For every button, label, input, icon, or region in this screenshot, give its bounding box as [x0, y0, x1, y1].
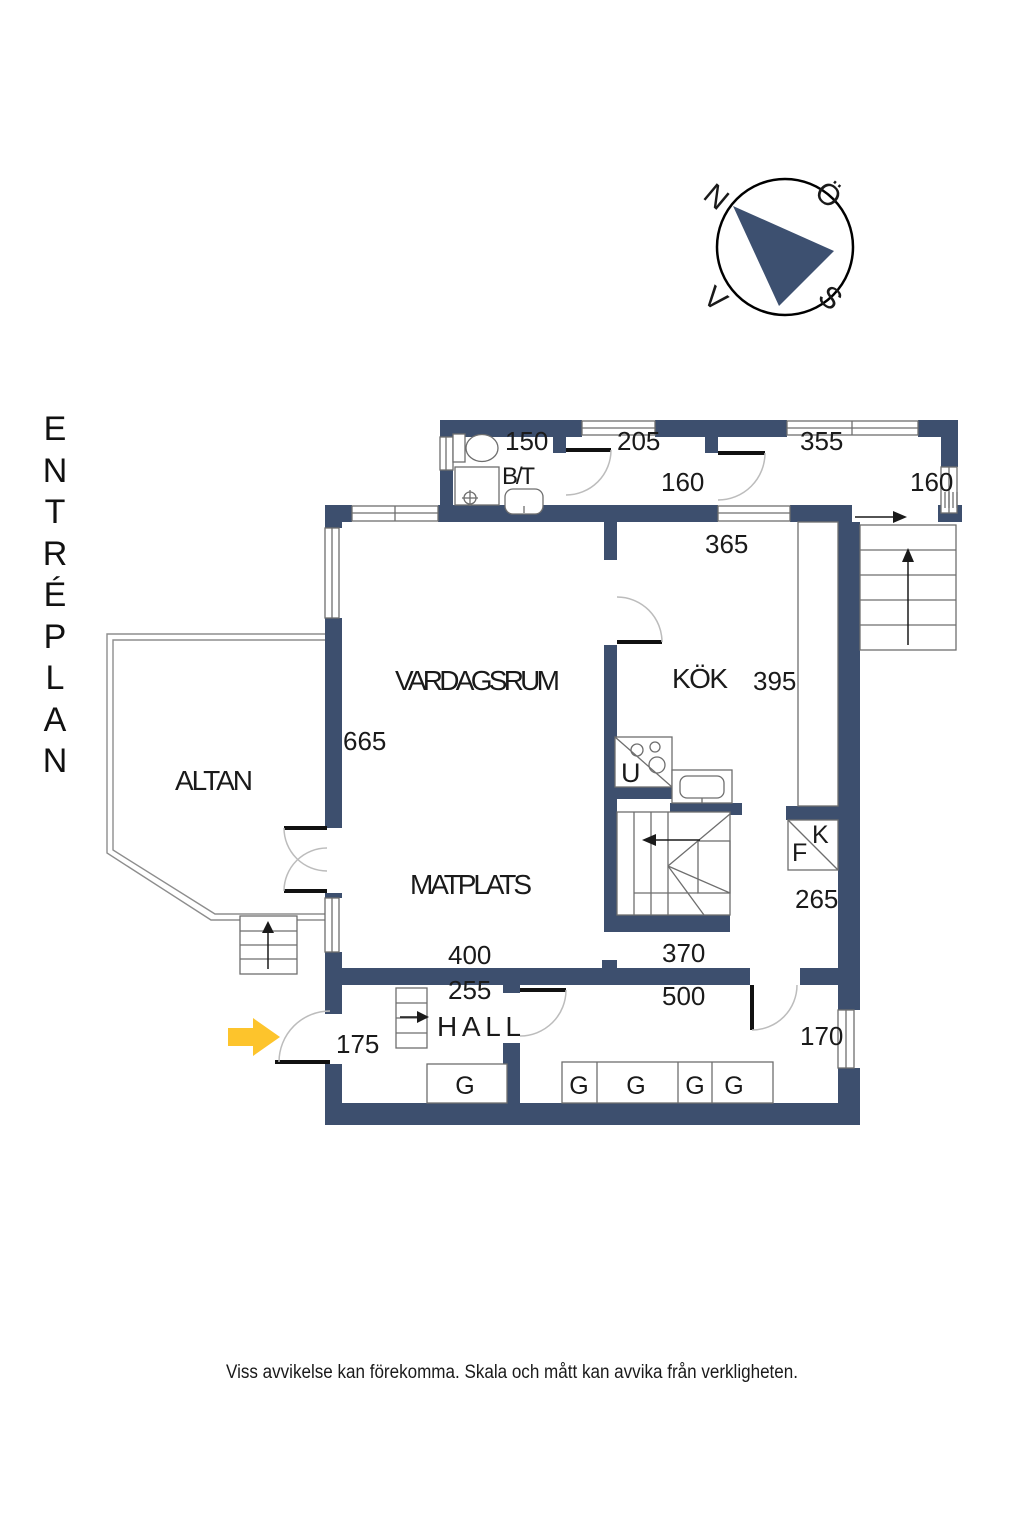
dimension-label: 160 [910, 467, 953, 497]
door-bathroom [566, 448, 611, 495]
dimension-label: 175 [336, 1029, 379, 1059]
floor-title-letter: L [46, 659, 65, 697]
window [440, 437, 453, 470]
oven-label: U [621, 758, 641, 788]
disclaimer-text: Viss avvikelse kan förekomma. Skala och … [226, 1362, 798, 1383]
floor-title-letter: E [44, 410, 67, 448]
wardrobe-label: G [626, 1072, 645, 1100]
window [718, 506, 790, 521]
shower [455, 467, 499, 506]
terrace-stairs [240, 916, 297, 974]
entry-path-arrow [855, 511, 907, 523]
hall-wardrobe: G [427, 1064, 507, 1103]
floor-title-letter: N [43, 452, 68, 490]
freezer-label: F [792, 839, 807, 867]
dimension-label: 265 [795, 884, 838, 914]
wardrobe-label: G [685, 1072, 704, 1100]
floorplan-page: N Ö S V E N T R É P L A N [0, 0, 1024, 1536]
dimension-label: 395 [753, 666, 796, 696]
dimension-label: 370 [662, 938, 705, 968]
door-kitchen [617, 597, 662, 644]
dimension-label: 160 [661, 467, 704, 497]
floor-title-letter: A [44, 701, 67, 739]
fridge-label: K [812, 821, 829, 849]
dimension-label: 500 [662, 981, 705, 1011]
door-corridor [750, 985, 797, 1030]
stove-oven-unit: U [615, 737, 672, 788]
room-label-kok: KÖK [672, 663, 728, 694]
dimension-label: 255 [448, 975, 491, 1005]
toilet [453, 434, 498, 462]
wardrobe-row: G G G G [562, 1062, 773, 1103]
room-label-matplats: MATPLATS [410, 869, 532, 900]
room-label-hall: HALL [437, 1011, 521, 1042]
room-label-vardagsrum: VARDAGSRUM [395, 665, 560, 696]
floor-title-letter: R [43, 535, 68, 573]
floor-title-letter: É [44, 576, 67, 614]
room-label-altan: ALTAN [175, 765, 253, 796]
entrance-arrow [228, 1018, 280, 1056]
dimension-label: 150 [505, 426, 548, 456]
room-label-badrum: B/T [502, 463, 535, 490]
wardrobe-label: G [455, 1072, 474, 1100]
floor-title-letter: N [43, 742, 68, 780]
floor-title-letter: P [44, 618, 67, 656]
window [325, 898, 339, 952]
hall-stairs [396, 988, 429, 1048]
floor-title: E N T R É P L A N [43, 410, 68, 780]
dimension-label: 365 [705, 529, 748, 559]
wardrobe-label: G [569, 1072, 588, 1100]
dimension-label: 665 [343, 726, 386, 756]
compass-rose: N Ö S V [697, 175, 853, 318]
tall-cabinet [798, 522, 838, 806]
dimension-label: 170 [800, 1021, 843, 1051]
interior-stairs [617, 812, 730, 915]
floor-title-letter: T [45, 493, 66, 531]
door-hall-room [520, 988, 566, 1036]
fridge-freezer-unit: F K [788, 820, 838, 870]
dimension-label: 205 [617, 426, 660, 456]
floorplan-canvas: N Ö S V E N T R É P L A N [0, 0, 1024, 1536]
entrance-door [275, 1011, 330, 1064]
window [352, 506, 438, 521]
wardrobe-label: G [724, 1072, 743, 1100]
door-porch [718, 451, 765, 500]
dimension-label: 400 [448, 940, 491, 970]
window [325, 528, 339, 618]
dimension-label: 355 [800, 426, 843, 456]
kitchen-sink [672, 770, 732, 803]
bathroom-sink [505, 489, 543, 514]
